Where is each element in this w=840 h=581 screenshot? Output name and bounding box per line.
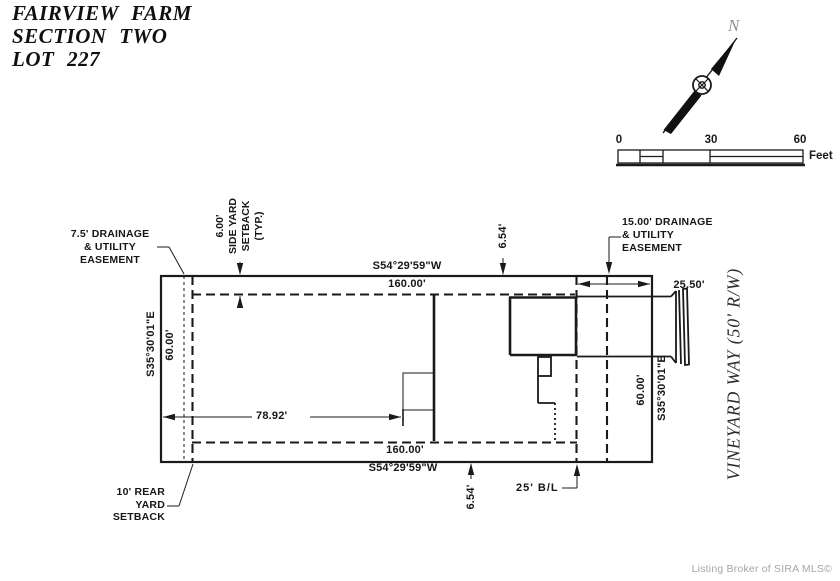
driveway bbox=[577, 289, 689, 366]
front-width-dim: 25.50' bbox=[651, 279, 727, 291]
side-yard-l1: 6.00' bbox=[214, 198, 227, 254]
side-yard-l3: SETBACK bbox=[240, 198, 253, 254]
scale-tick-30: 30 bbox=[699, 134, 723, 146]
left-bearing: S35°30'01"E bbox=[145, 311, 157, 377]
scale-tick-60: 60 bbox=[788, 134, 812, 146]
rear-yard-l1: 10' REAR bbox=[95, 486, 165, 499]
easement-left-l2: & UTILITY bbox=[55, 241, 165, 254]
easement-left-l3: EASEMENT bbox=[55, 254, 165, 267]
curb-apron bbox=[683, 289, 689, 366]
scale-bar bbox=[616, 150, 805, 165]
right-length: 60.00' bbox=[635, 374, 647, 405]
bottom-length: 160.00' bbox=[355, 444, 455, 456]
side-yard-l4: (TYP.) bbox=[253, 198, 266, 254]
house-setback-dim: 78.92' bbox=[252, 410, 291, 422]
easement-right-l2: & UTILITY bbox=[622, 229, 713, 242]
left-length: 60.00' bbox=[164, 329, 176, 360]
title-line-3: LOT 227 bbox=[12, 48, 192, 71]
easement-right-l3: EASEMENT bbox=[622, 242, 713, 255]
north-arrow-icon bbox=[663, 38, 737, 134]
scale-unit: Feet bbox=[809, 150, 833, 162]
gap-dim-top: 6.54' bbox=[497, 223, 509, 248]
easement-left-l1: 7.5' DRAINAGE bbox=[55, 228, 165, 241]
plat-title: FAIRVIEW FARM SECTION TWO LOT 227 bbox=[12, 2, 192, 71]
scale-tick-0: 0 bbox=[613, 134, 625, 146]
listing-credit: Listing Broker of SIRA MLS© bbox=[622, 563, 832, 575]
lot-boundary bbox=[161, 276, 652, 462]
rear-yard-setback-note: 10' REAR YARD SETBACK bbox=[95, 486, 165, 524]
side-yard-l2: SIDE YARD bbox=[227, 198, 240, 254]
top-length: 160.00' bbox=[357, 278, 457, 290]
plat-drawing: FAIRVIEW FARM SECTION TWO LOT 227 N 0 30… bbox=[0, 0, 840, 581]
right-bearing: S35°30'01"E bbox=[656, 355, 668, 421]
setback-lines bbox=[192, 276, 607, 462]
side-yard-setback-note: 6.00' SIDE YARD SETBACK (TYP.) bbox=[214, 198, 266, 254]
top-bearing: S54°29'59"W bbox=[347, 260, 467, 272]
porch-outline bbox=[403, 373, 434, 410]
street-name: VINEYARD WAY (50' R/W) bbox=[724, 268, 745, 480]
easement-right-note: 15.00' DRAINAGE & UTILITY EASEMENT bbox=[622, 216, 713, 255]
building-line-label: 25' B/L bbox=[516, 482, 559, 494]
bottom-bearing: S54°29'59"W bbox=[343, 462, 463, 474]
title-line-1: FAIRVIEW FARM bbox=[12, 2, 192, 25]
gap-dim-bottom: 6.54' bbox=[465, 484, 477, 509]
north-label: N bbox=[728, 16, 739, 36]
easement-left-note: 7.5' DRAINAGE & UTILITY EASEMENT bbox=[55, 228, 165, 267]
house-steps bbox=[538, 357, 555, 441]
rear-yard-l2: YARD bbox=[95, 499, 165, 512]
easement-right-l1: 15.00' DRAINAGE bbox=[622, 216, 713, 229]
title-line-2: SECTION TWO bbox=[12, 25, 192, 48]
rear-yard-l3: SETBACK bbox=[95, 511, 165, 524]
